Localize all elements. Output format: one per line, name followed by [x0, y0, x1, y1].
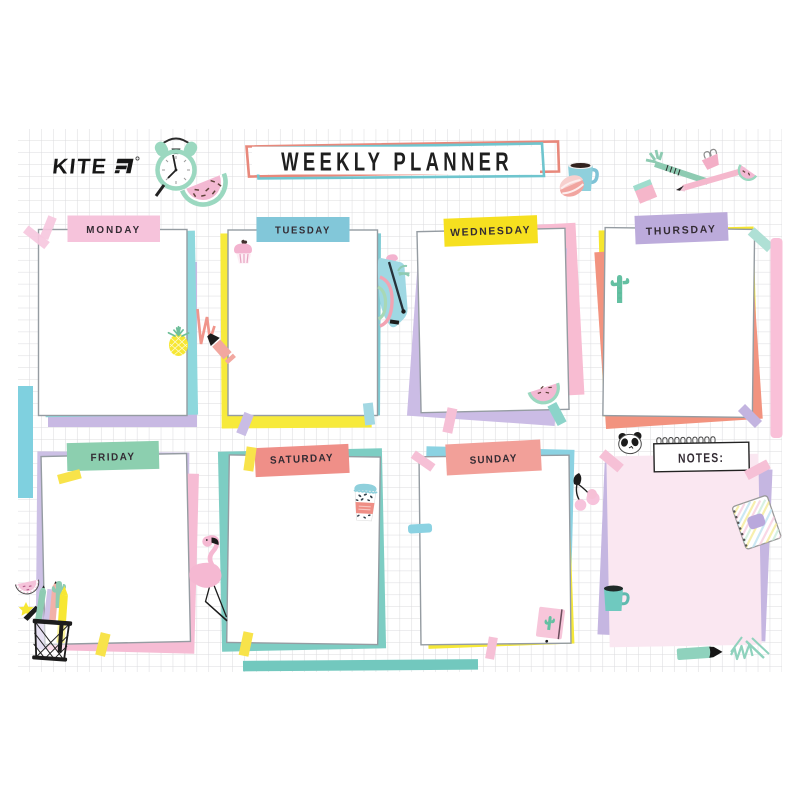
svg-text:KITE: KITE	[51, 154, 109, 179]
svg-text:NOTES:: NOTES:	[678, 450, 724, 466]
svg-text:TUESDAY: TUESDAY	[275, 225, 331, 237]
svg-text:FRIDAY: FRIDAY	[90, 451, 135, 464]
svg-text:WEEKLY PLANNER: WEEKLY PLANNER	[281, 146, 513, 176]
svg-text:SUNDAY: SUNDAY	[469, 452, 518, 466]
svg-text:MONDAY: MONDAY	[86, 224, 141, 236]
